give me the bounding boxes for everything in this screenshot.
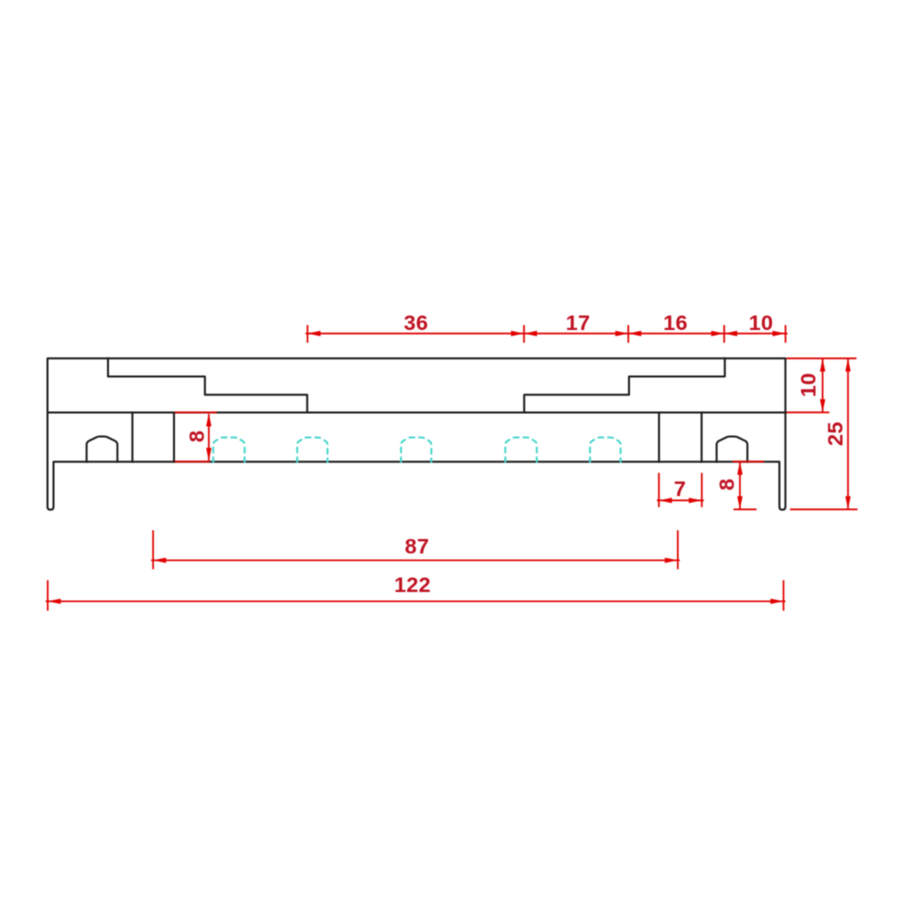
svg-text:17: 17: [566, 311, 591, 335]
svg-text:25: 25: [824, 421, 848, 446]
svg-text:10: 10: [797, 373, 821, 398]
svg-text:8: 8: [185, 430, 209, 442]
svg-text:36: 36: [404, 311, 429, 335]
svg-text:16: 16: [663, 311, 688, 335]
svg-text:8: 8: [715, 478, 739, 490]
svg-text:122: 122: [394, 573, 431, 597]
svg-text:10: 10: [749, 311, 774, 335]
svg-text:87: 87: [405, 535, 430, 559]
svg-text:7: 7: [674, 477, 686, 501]
